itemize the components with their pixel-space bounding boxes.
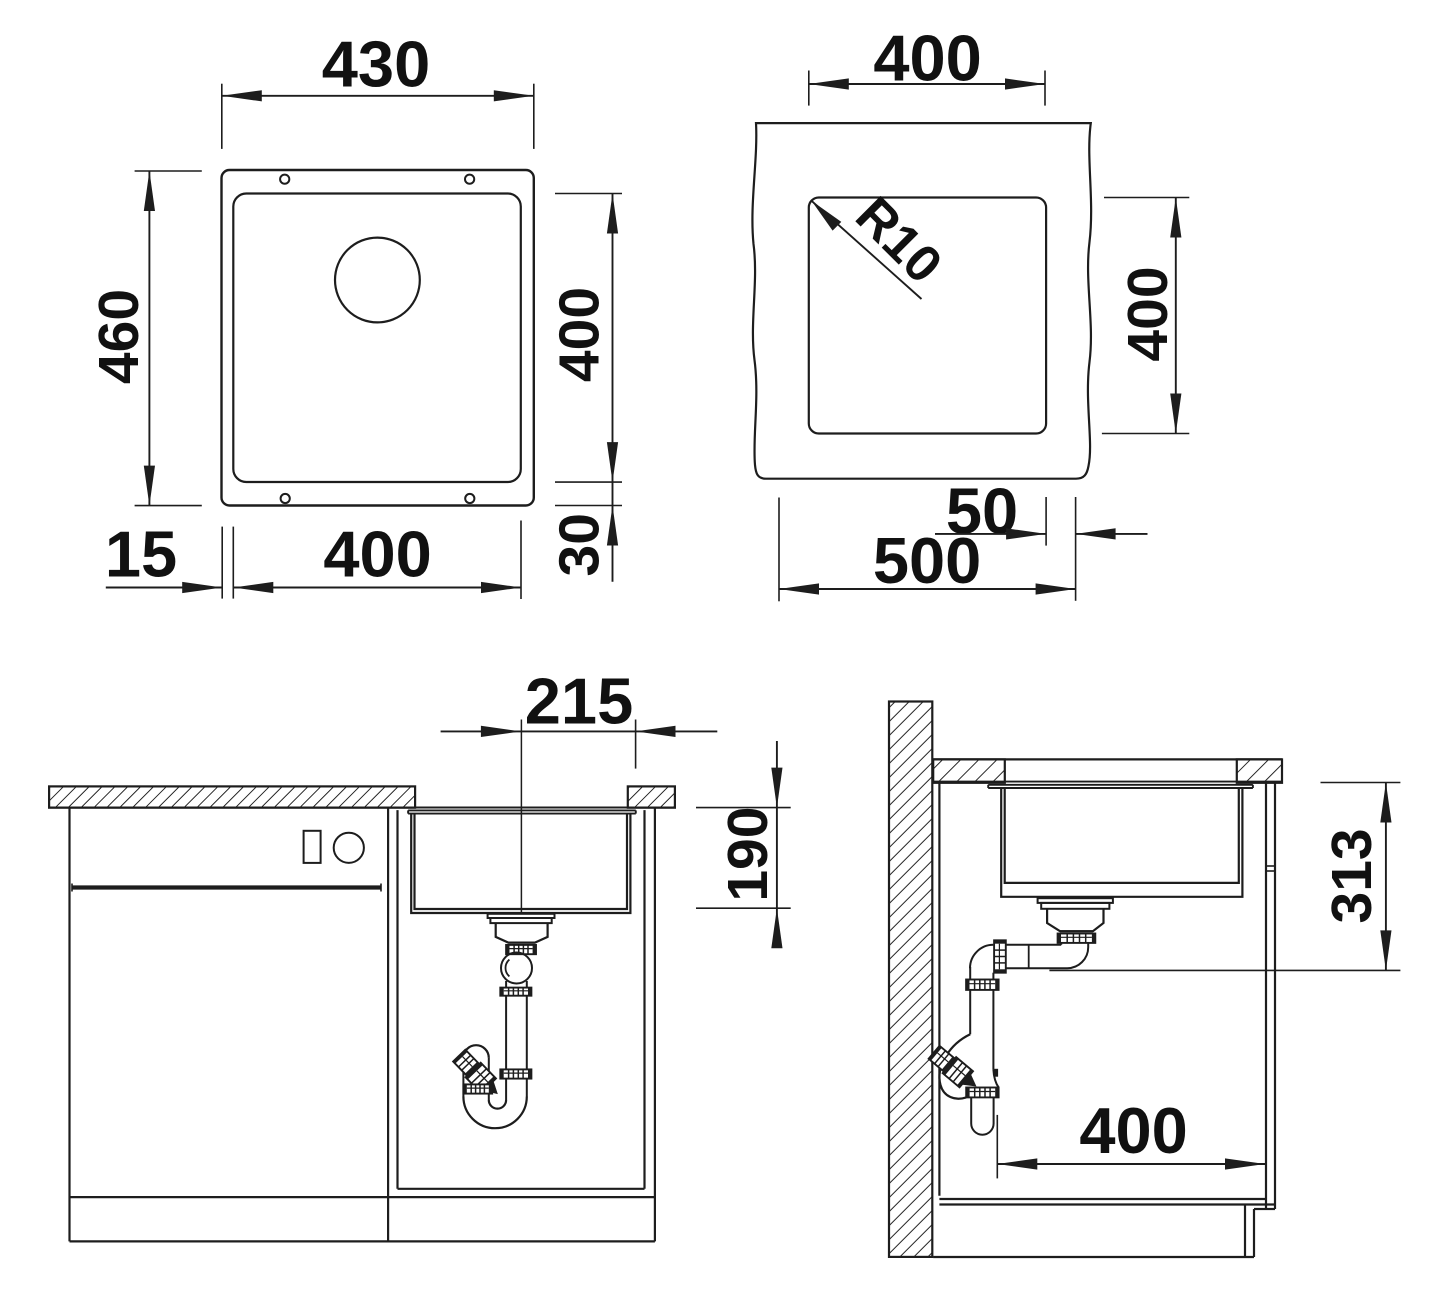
svg-text:400: 400 bbox=[1079, 1094, 1187, 1167]
svg-text:313: 313 bbox=[1320, 828, 1384, 923]
svg-text:430: 430 bbox=[322, 28, 430, 101]
svg-text:500: 500 bbox=[873, 524, 981, 597]
svg-text:215: 215 bbox=[525, 665, 633, 738]
svg-text:190: 190 bbox=[716, 807, 780, 902]
svg-text:460: 460 bbox=[87, 289, 151, 384]
svg-text:400: 400 bbox=[1116, 266, 1180, 361]
svg-text:400: 400 bbox=[323, 518, 431, 591]
svg-text:30: 30 bbox=[548, 513, 612, 576]
svg-text:15: 15 bbox=[105, 518, 177, 591]
svg-text:400: 400 bbox=[548, 287, 612, 382]
